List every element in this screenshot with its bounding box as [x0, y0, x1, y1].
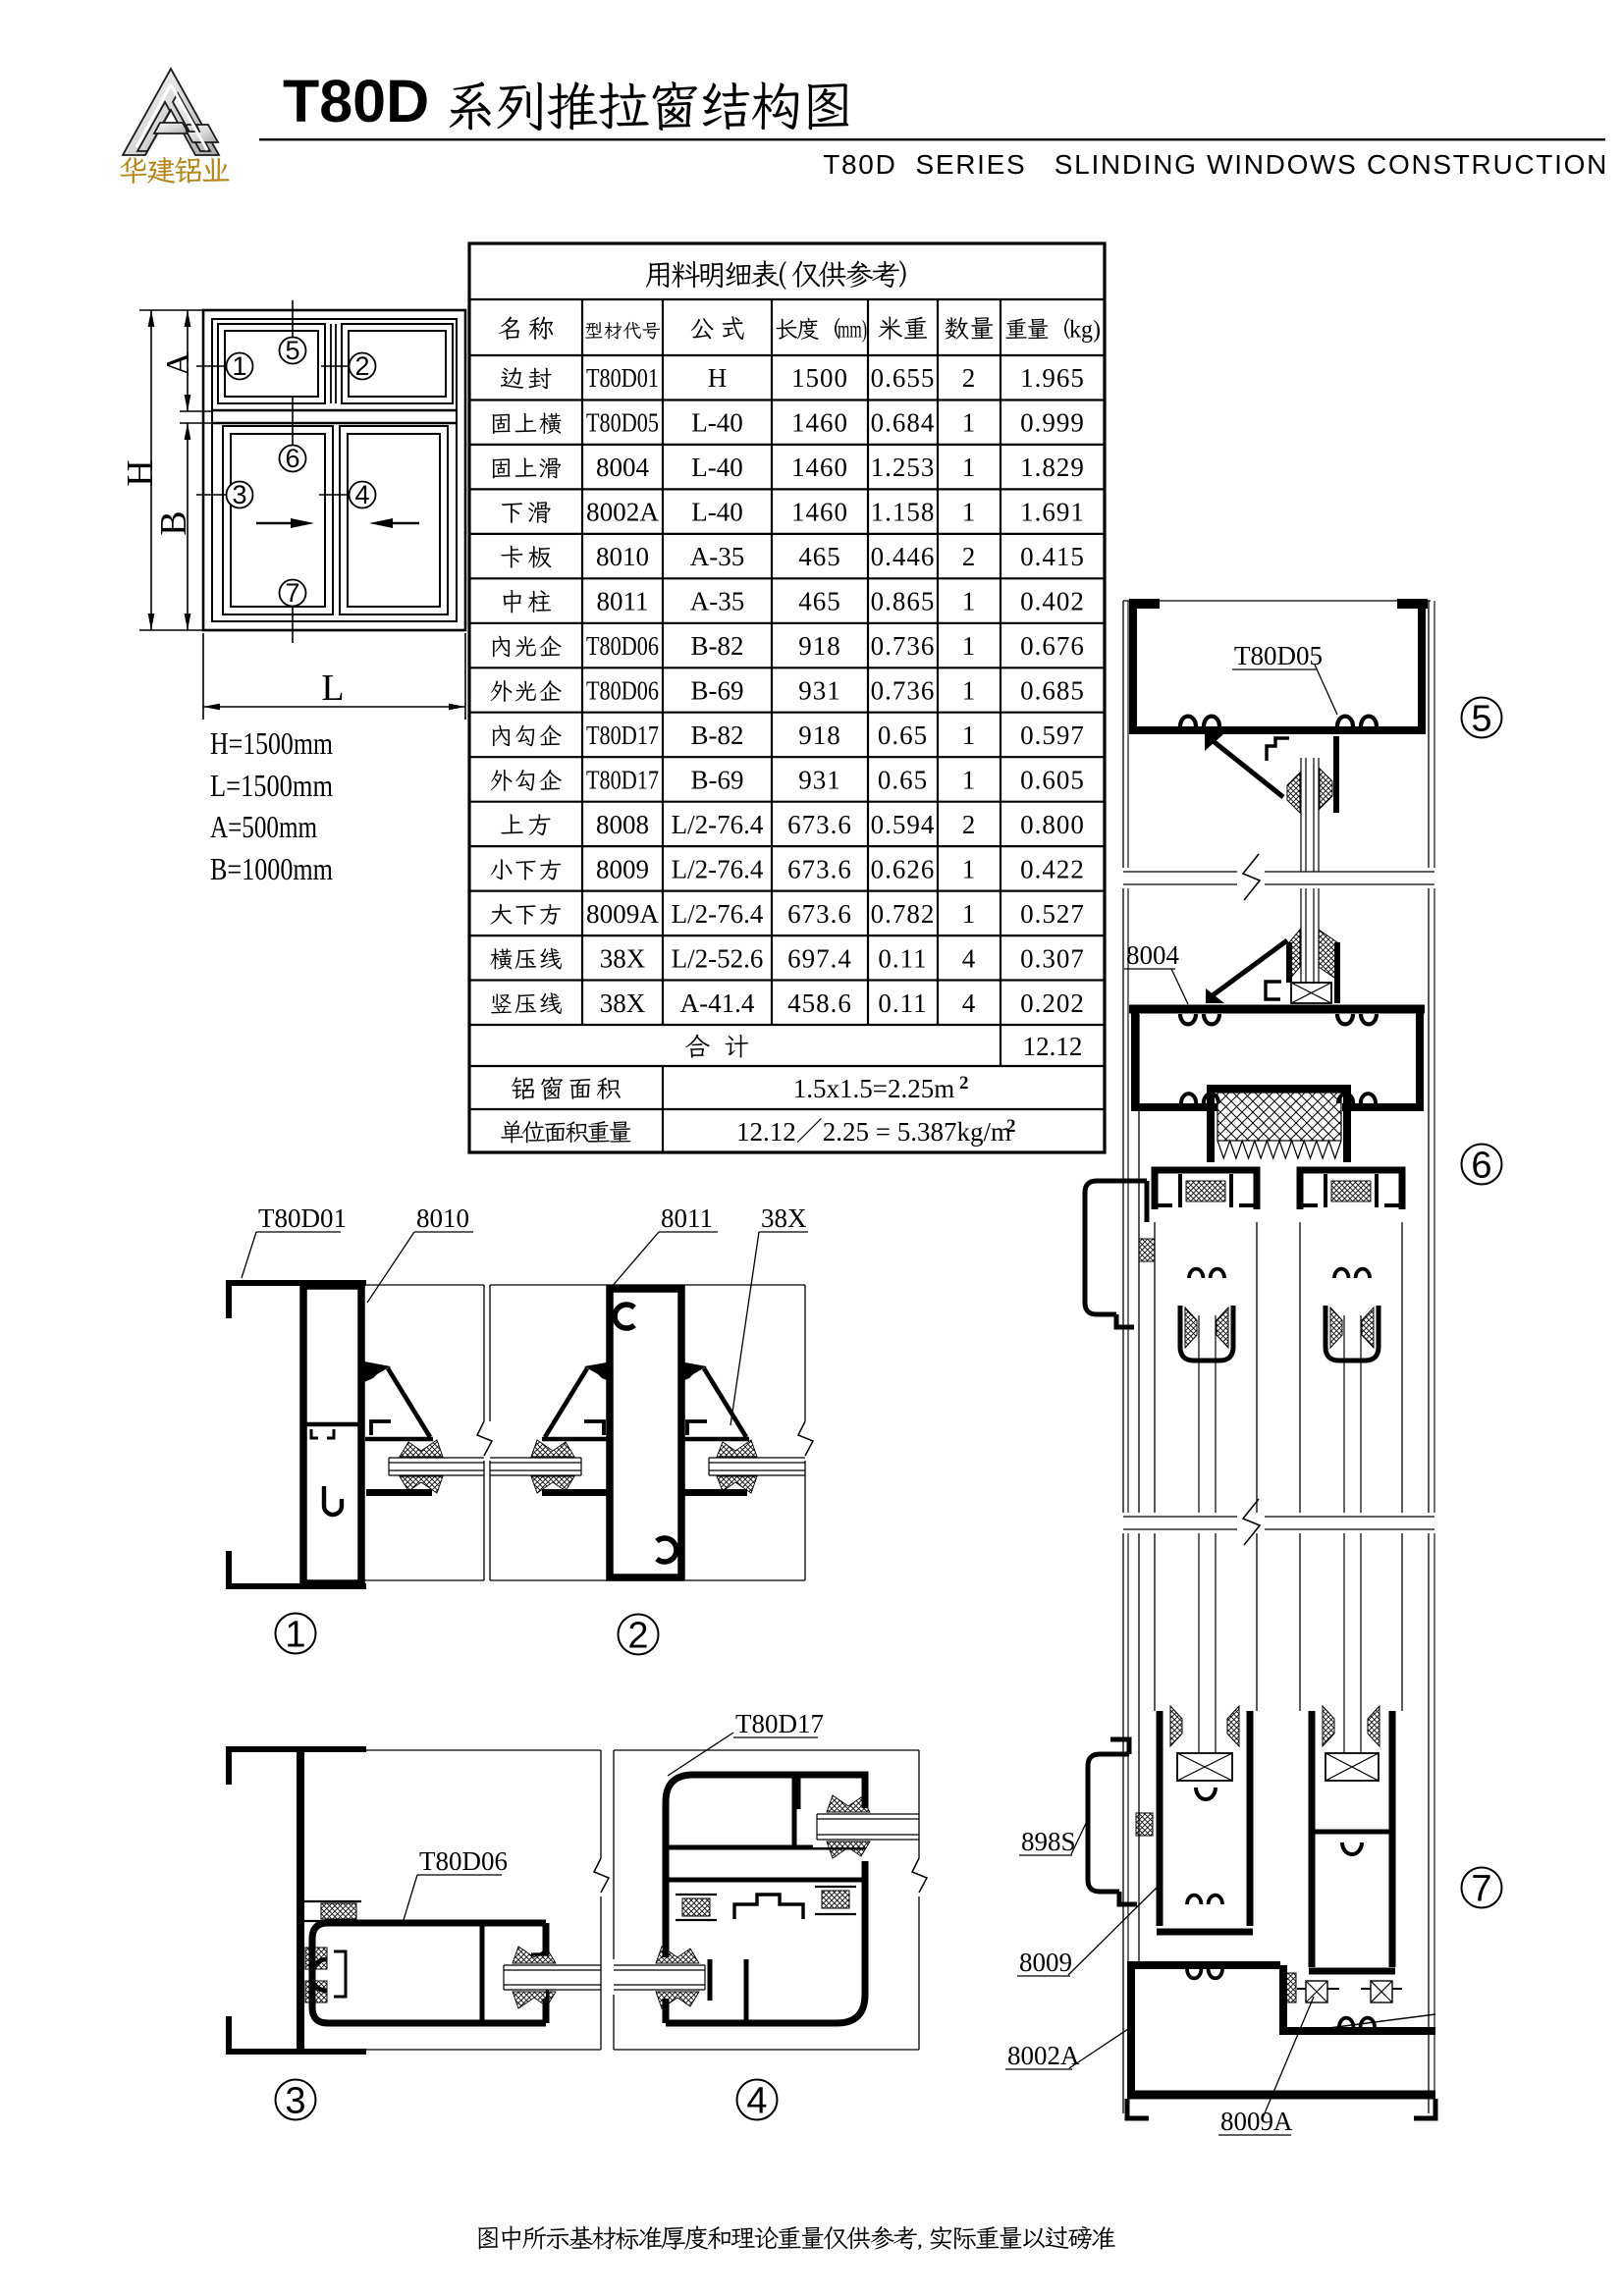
svg-text:0.422: 0.422 — [1020, 854, 1085, 883]
svg-text:0.800: 0.800 — [1020, 810, 1085, 839]
svg-text:L=1500mm: L=1500mm — [210, 768, 333, 803]
svg-text:8010: 8010 — [416, 1203, 469, 1233]
svg-text:L-40: L-40 — [691, 453, 742, 482]
svg-text:B-69: B-69 — [691, 765, 744, 794]
svg-text:L/2-52.6: L/2-52.6 — [672, 943, 764, 973]
svg-text:673.6: 673.6 — [787, 854, 852, 883]
svg-text:B-82: B-82 — [691, 631, 744, 661]
svg-text:1.691: 1.691 — [1020, 498, 1085, 527]
svg-text:T80D06: T80D06 — [586, 676, 659, 706]
svg-text:1: 1 — [962, 587, 977, 616]
svg-text:T80D17: T80D17 — [586, 721, 659, 750]
svg-text:T80D06: T80D06 — [419, 1846, 508, 1876]
svg-text:T80D17: T80D17 — [735, 1709, 824, 1738]
svg-text:B-69: B-69 — [691, 676, 744, 706]
svg-text:0.65: 0.65 — [878, 765, 928, 794]
svg-text:8009A: 8009A — [1220, 2107, 1293, 2136]
svg-text:T80D06: T80D06 — [586, 631, 659, 661]
svg-text:898S: 898S — [1021, 1827, 1076, 1856]
svg-text:1.158: 1.158 — [871, 498, 936, 527]
svg-text:0.65: 0.65 — [878, 721, 928, 750]
svg-text:T80D05: T80D05 — [1234, 641, 1323, 670]
svg-text:7: 7 — [285, 578, 299, 608]
svg-text:A=500mm: A=500mm — [210, 809, 317, 844]
svg-text:T80D01: T80D01 — [258, 1203, 347, 1233]
svg-text:1: 1 — [962, 721, 977, 750]
svg-text:2: 2 — [959, 1073, 969, 1094]
svg-text:B: B — [153, 510, 194, 535]
svg-text:L/2-76.4: L/2-76.4 — [672, 899, 764, 929]
svg-text:0.684: 0.684 — [871, 408, 936, 438]
svg-text:H=1500mm: H=1500mm — [210, 725, 333, 761]
svg-text:T80D05: T80D05 — [586, 408, 659, 438]
svg-text:1.5x1.5=2.25m: 1.5x1.5=2.25m — [793, 1074, 954, 1103]
svg-text:673.6: 673.6 — [787, 810, 852, 839]
svg-text:1: 1 — [962, 453, 977, 482]
svg-text:0.527: 0.527 — [1020, 899, 1085, 929]
svg-text:8004: 8004 — [596, 453, 650, 482]
svg-text:8002A: 8002A — [1007, 2041, 1080, 2070]
svg-text:H: H — [708, 363, 728, 393]
svg-text:918: 918 — [798, 631, 841, 661]
svg-text:4: 4 — [354, 480, 369, 509]
svg-text:1: 1 — [962, 676, 977, 706]
svg-text:38X: 38X — [600, 943, 646, 973]
svg-text:1: 1 — [962, 854, 977, 883]
svg-text:931: 931 — [798, 765, 841, 794]
svg-text:1460: 1460 — [791, 453, 848, 482]
svg-text:0.736: 0.736 — [871, 676, 936, 706]
svg-text:0.446: 0.446 — [871, 542, 936, 571]
svg-text:0.594: 0.594 — [871, 810, 936, 839]
svg-text:T80D17: T80D17 — [586, 765, 659, 794]
svg-text:465: 465 — [798, 587, 841, 616]
svg-text:38X: 38X — [761, 1203, 807, 1233]
svg-text:12.12: 12.12 — [1023, 1032, 1083, 1061]
svg-text:H: H — [120, 459, 161, 486]
svg-text:A-35: A-35 — [690, 587, 745, 616]
svg-text:0.782: 0.782 — [871, 899, 936, 929]
svg-text:L-40: L-40 — [691, 498, 742, 527]
svg-text:465: 465 — [798, 542, 841, 571]
svg-text:L-40: L-40 — [691, 408, 742, 438]
svg-text:A-35: A-35 — [690, 542, 745, 571]
svg-text:0.605: 0.605 — [1020, 765, 1085, 794]
svg-text:T80D SERIES SLINDING WINDOW: T80D SERIES SLINDING WINDOWS CONSTRUCTIO… — [823, 149, 1608, 180]
svg-text:1.965: 1.965 — [1020, 363, 1085, 393]
svg-text:1460: 1460 — [791, 408, 848, 438]
svg-text:B-82: B-82 — [691, 721, 744, 750]
svg-text:8009A: 8009A — [586, 899, 660, 929]
svg-text:8004: 8004 — [1126, 940, 1180, 970]
svg-text:L/2-76.4: L/2-76.4 — [672, 810, 764, 839]
svg-text:B=1000mm: B=1000mm — [210, 851, 333, 886]
svg-text:4: 4 — [962, 943, 977, 973]
svg-text:5: 5 — [1471, 698, 1491, 739]
svg-text:0.865: 0.865 — [871, 587, 936, 616]
svg-text:8010: 8010 — [596, 542, 649, 571]
svg-text:0.307: 0.307 — [1020, 943, 1085, 973]
svg-text:4: 4 — [746, 2080, 767, 2121]
svg-text:0.11: 0.11 — [878, 943, 927, 973]
svg-text:1: 1 — [962, 899, 977, 929]
svg-text:0.402: 0.402 — [1020, 587, 1085, 616]
svg-text:T80D01: T80D01 — [586, 363, 659, 393]
svg-text:38X: 38X — [600, 988, 646, 1018]
svg-text:0.626: 0.626 — [871, 854, 936, 883]
svg-text:L/2-76.4: L/2-76.4 — [672, 854, 764, 883]
svg-text:0.597: 0.597 — [1020, 721, 1085, 750]
svg-text:697.4: 697.4 — [787, 943, 852, 973]
svg-text:2: 2 — [962, 363, 977, 393]
svg-text:5: 5 — [285, 336, 299, 365]
svg-text:458.6: 458.6 — [787, 988, 852, 1018]
svg-text:L: L — [321, 667, 344, 709]
svg-text:4: 4 — [962, 988, 977, 1018]
svg-text:8009: 8009 — [1019, 1948, 1072, 1977]
svg-text:8008: 8008 — [596, 810, 649, 839]
svg-text:1: 1 — [962, 498, 977, 527]
svg-text:1: 1 — [232, 351, 246, 381]
svg-text:2: 2 — [1006, 1116, 1016, 1137]
svg-text:3: 3 — [232, 480, 246, 509]
svg-text:1: 1 — [962, 408, 977, 438]
svg-text:kg): kg) — [1069, 317, 1101, 344]
svg-text:2: 2 — [962, 810, 977, 839]
svg-text:0.11: 0.11 — [878, 988, 927, 1018]
svg-text:1460: 1460 — [791, 498, 848, 527]
svg-text:A: A — [160, 351, 196, 376]
svg-text:2: 2 — [627, 1615, 648, 1656]
svg-text:2: 2 — [962, 542, 977, 571]
svg-text:1: 1 — [962, 765, 977, 794]
svg-text:7: 7 — [1471, 1868, 1491, 1909]
svg-text:0.999: 0.999 — [1020, 408, 1085, 438]
svg-text:0.202: 0.202 — [1020, 988, 1085, 1018]
svg-text:3: 3 — [285, 2080, 305, 2121]
svg-text:0.415: 0.415 — [1020, 542, 1085, 571]
svg-text:8011: 8011 — [661, 1203, 713, 1233]
svg-text:2: 2 — [354, 351, 369, 381]
svg-text:1: 1 — [962, 631, 977, 661]
svg-text:6: 6 — [1471, 1145, 1491, 1186]
svg-text:6: 6 — [285, 444, 299, 473]
svg-text:1.829: 1.829 — [1020, 453, 1085, 482]
svg-text:0.685: 0.685 — [1020, 676, 1085, 706]
svg-text:0.655: 0.655 — [871, 363, 936, 393]
svg-text:0.736: 0.736 — [871, 631, 936, 661]
svg-text:12.12／2.25 = 5.387kg/m: 12.12／2.25 = 5.387kg/m — [736, 1117, 1011, 1147]
svg-text:T80D: T80D — [283, 68, 429, 134]
svg-text:8002A: 8002A — [586, 498, 660, 527]
svg-text:mm): mm) — [838, 317, 867, 344]
svg-text:931: 931 — [798, 676, 841, 706]
svg-text:1500: 1500 — [791, 363, 848, 393]
svg-text:A-41.4: A-41.4 — [680, 988, 755, 1018]
svg-text:1: 1 — [285, 1614, 305, 1655]
svg-text:918: 918 — [798, 721, 841, 750]
svg-text:1.253: 1.253 — [871, 453, 936, 482]
svg-text:0.676: 0.676 — [1020, 631, 1085, 661]
svg-text:8011: 8011 — [597, 587, 649, 616]
svg-text:673.6: 673.6 — [787, 899, 852, 929]
svg-text:8009: 8009 — [596, 854, 649, 883]
